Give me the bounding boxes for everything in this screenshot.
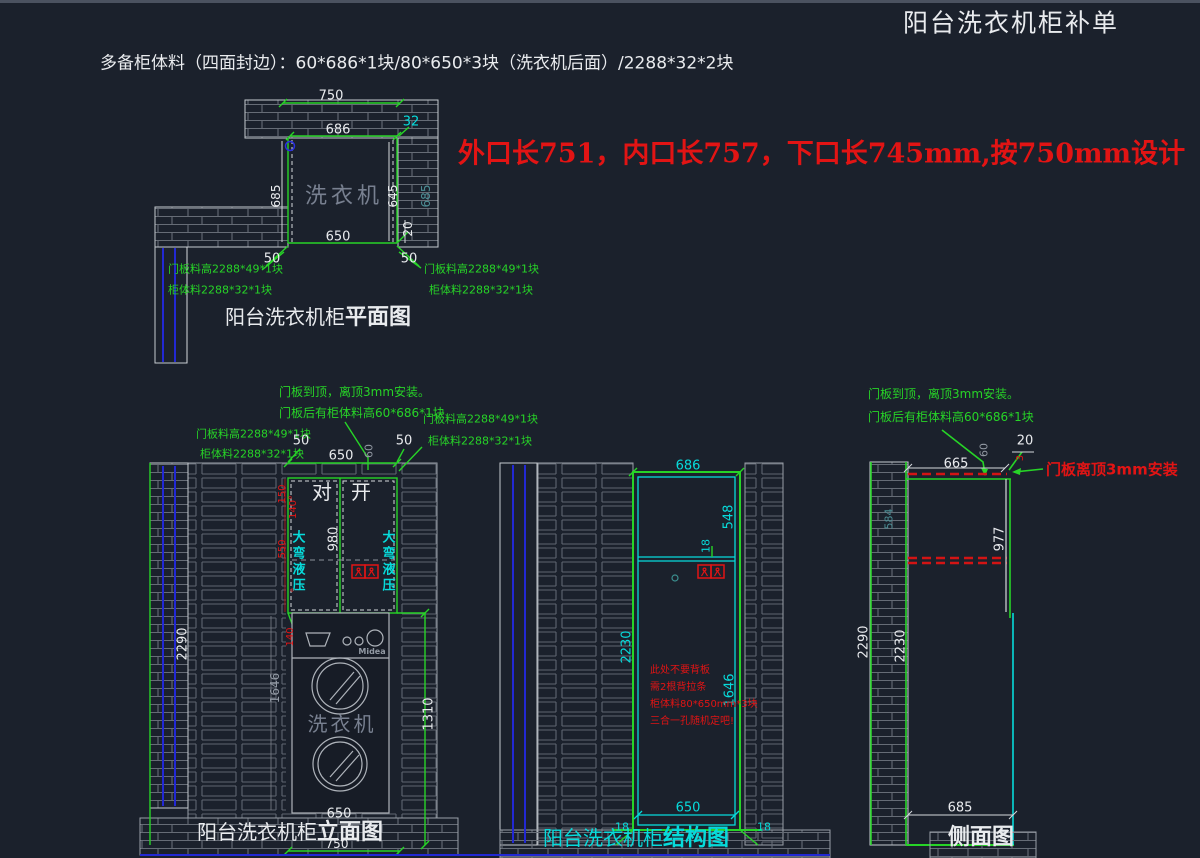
struct-dim-2230: 2230 — [621, 630, 634, 663]
struct-red-note-4: 三合一孔随机定吧! — [650, 717, 734, 727]
elev-note-1: 门板到顶，离顶3mm安装。 — [279, 386, 430, 398]
cad-canvas — [0, 0, 1200, 858]
side-dim-20: 20 — [1017, 435, 1034, 448]
struct-red-note-3: 柜体料80*650mm*3块 — [650, 700, 758, 710]
plan-leader-left-1: 门板料高2288*49*1块 — [168, 264, 283, 275]
elevation-view-title: 阳台洗衣机柜立面图 — [197, 822, 383, 844]
struct-red-note-1: 此处不要背板 — [650, 666, 710, 676]
dim-685-left: 685 — [270, 185, 282, 208]
side-view-title: 侧面图 — [948, 827, 1014, 849]
structure-view-linework — [500, 463, 830, 858]
side-dim-60: 60 — [979, 443, 990, 457]
struct-dim-18-shelf: 18 — [701, 539, 712, 553]
elev-dim-50-left: 50 — [293, 435, 310, 448]
dim-645: 645 — [387, 185, 399, 208]
dimension-red-note: 外口长751，内口长757，下口长745mm,按750mm设计 — [458, 141, 1185, 168]
door-label-left: 对 — [312, 482, 332, 502]
washer-brand: Midea — [358, 648, 385, 656]
structure-view-title: 阳台洗衣机柜结构图 — [543, 828, 729, 850]
struct-red-note-2: 需2根背拉条 — [650, 683, 706, 693]
dim-20: 20 — [402, 221, 414, 236]
struct-dim-548: 548 — [723, 505, 736, 530]
struct-title-text: 阳台洗衣机柜 — [543, 826, 663, 850]
dim-650: 650 — [326, 231, 351, 244]
elev-dim-980: 980 — [328, 527, 341, 552]
side-dim-3: 3 — [1016, 455, 1026, 461]
struct-dim-18-right: 18 — [757, 822, 771, 833]
struct-dim-650: 650 — [676, 802, 701, 815]
elev-dim-650-top: 650 — [329, 450, 354, 463]
elev-note-2: 门板后有柜体料高60*686*1块 — [279, 407, 445, 419]
elev-dim-150: 150 — [278, 484, 288, 503]
hinge-label-left: 大弯液压 — [291, 530, 304, 594]
materials-note: 多备柜体料（四面封边）：60*686*1块/80*650*3块（洗衣机后面）/2… — [100, 56, 733, 73]
hinge-marker-icon — [286, 142, 295, 151]
elev-machine-label: 洗衣机 — [308, 714, 377, 734]
elev-dim-1310: 1310 — [423, 697, 436, 730]
elev-leader-right-1: 门板料高2288*49*1块 — [423, 414, 538, 425]
elev-deg-mark: ° — [291, 588, 301, 593]
cad-drawing-window: 阳台洗衣机柜补单 多备柜体料（四面封边）：60*686*1块/80*650*3块… — [0, 0, 1200, 858]
plan-leader-right-2: 柜体料2288*32*1块 — [429, 285, 533, 296]
struct-dim-686: 686 — [676, 460, 701, 473]
elev-dim-60: 60 — [364, 444, 375, 458]
side-note-2: 门板后有柜体料高60*686*1块 — [868, 411, 1034, 423]
elev-leader-right-2: 柜体料2288*32*1块 — [428, 436, 532, 447]
side-dim-584: 584 — [884, 509, 895, 530]
elev-title-suffix: 立面图 — [317, 820, 383, 845]
side-dim-685: 685 — [948, 802, 973, 815]
dim-50-right: 50 — [401, 253, 418, 266]
plan-view-title: 阳台洗衣机柜平面图 — [225, 307, 411, 329]
side-dim-977: 977 — [994, 527, 1007, 552]
side-dim-2230: 2230 — [895, 629, 908, 662]
side-note-1: 门板到顶，离顶3mm安装。 — [868, 388, 1019, 400]
side-dim-2290: 2290 — [858, 625, 871, 658]
plan-leader-right-1: 门板料高2288*49*1块 — [424, 264, 539, 275]
elev-dim-50-right: 50 — [396, 435, 413, 448]
elev-dim-140: 140 — [286, 627, 296, 646]
elev-dim-2290: 2290 — [177, 627, 190, 660]
elev-dim-550: 550 — [278, 539, 288, 558]
hinge-label-right: 大弯液压 — [381, 530, 394, 594]
dim-32: 32 — [403, 116, 420, 129]
dim-686: 686 — [326, 124, 351, 137]
elev-title-text: 阳台洗衣机柜 — [197, 820, 317, 844]
door-label-right: 开 — [351, 482, 371, 502]
side-dim-665: 665 — [944, 458, 969, 471]
plan-leader-left-2: 柜体料2288*32*1块 — [168, 285, 272, 296]
elev-leader-left-2: 柜体料2288*32*1块 — [200, 449, 304, 460]
side-red-note: 门板离顶3mm安装 — [1046, 463, 1178, 478]
elev-dim-140deg: 140° — [289, 495, 299, 519]
elev-dim-1646: 1646 — [269, 673, 281, 704]
elev-dim-650-bottom: 650 — [327, 808, 352, 821]
dim-685-wall: 685 — [420, 185, 432, 208]
plan-title-suffix: 平面图 — [345, 305, 411, 330]
plan-machine-label: 洗衣机 — [305, 186, 383, 208]
struct-title-suffix: 结构图 — [663, 826, 729, 851]
plan-title-text: 阳台洗衣机柜 — [225, 305, 345, 329]
dim-750: 750 — [319, 90, 344, 103]
page-title: 阳台洗衣机柜补单 — [903, 11, 1119, 36]
